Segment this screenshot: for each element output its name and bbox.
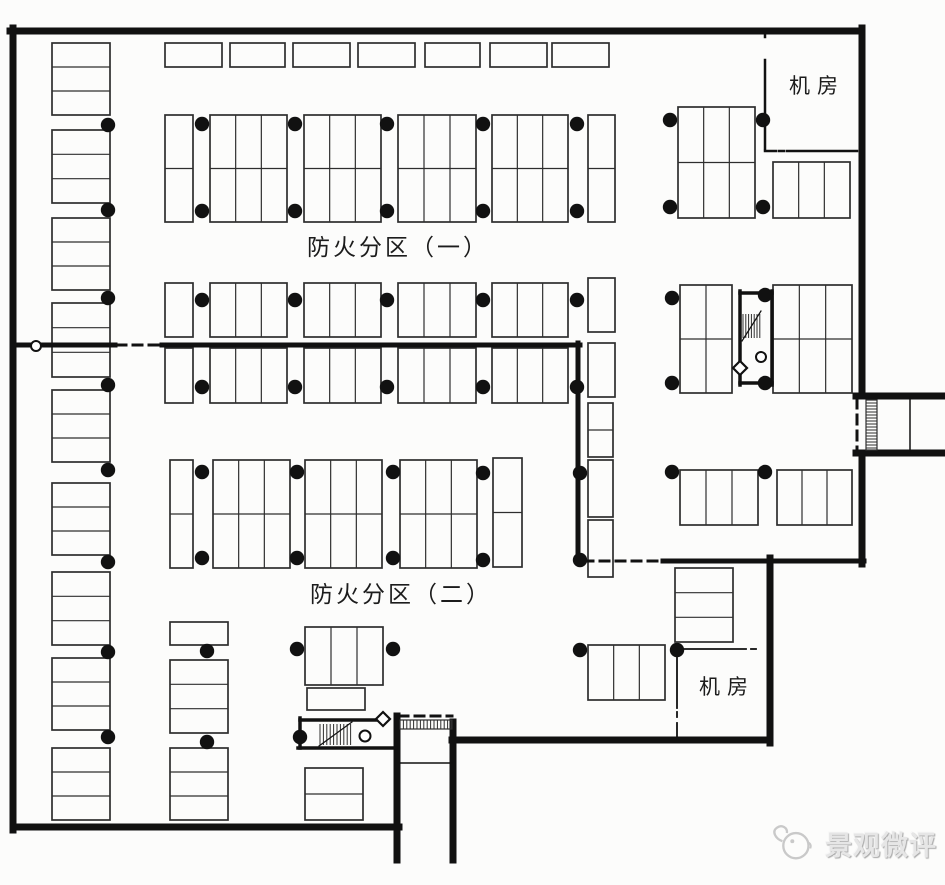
diamond-symbol	[733, 361, 747, 375]
stall-group	[680, 285, 732, 393]
stall-group	[773, 162, 850, 218]
exterior-walls	[10, 28, 945, 860]
stall-group-outline	[165, 43, 222, 67]
stall-group	[773, 285, 852, 393]
column-dot	[288, 380, 302, 394]
column-dot	[101, 730, 115, 744]
column-dot	[665, 376, 679, 390]
stall-group-outline	[52, 390, 110, 462]
stall-group	[52, 658, 110, 730]
stall-group-outline	[304, 283, 381, 337]
stall-group-outline	[52, 748, 110, 820]
column-dot	[195, 293, 209, 307]
door-circle-symbol	[31, 341, 41, 351]
stall-group	[210, 283, 287, 337]
stall-group-outline	[588, 343, 615, 397]
label-machine-room-bottom: 机房	[699, 677, 755, 698]
column-dot	[670, 643, 684, 657]
stall-group-outline	[588, 645, 665, 700]
stall-group	[588, 343, 615, 397]
stall-group-outline	[170, 748, 228, 820]
stall-group	[305, 627, 383, 685]
column-dot	[663, 200, 677, 214]
stall-group	[52, 43, 110, 115]
stall-group	[230, 43, 285, 67]
column-dot	[665, 291, 679, 305]
watermark: 景观微评	[768, 820, 937, 866]
column-dot	[570, 293, 584, 307]
stall-group	[52, 748, 110, 820]
stall-group	[170, 622, 228, 645]
column-dot	[573, 553, 587, 567]
stall-group-outline	[165, 348, 193, 403]
stall-group	[680, 470, 758, 525]
stall-group-outline	[552, 43, 609, 67]
column-dot	[200, 644, 214, 658]
column-dot	[663, 113, 677, 127]
stall-group-outline	[170, 622, 228, 645]
stall-group	[52, 390, 110, 462]
column-dot	[476, 204, 490, 218]
column-dot	[290, 642, 304, 656]
stall-group	[678, 107, 755, 218]
stall-group-outline	[425, 43, 480, 67]
stall-group-outline	[490, 43, 547, 67]
stall-group-outline	[52, 483, 110, 555]
column-dot	[101, 118, 115, 132]
stall-group-outline	[52, 218, 110, 290]
stall-group	[165, 348, 193, 403]
stall-group-outline	[675, 568, 733, 642]
stall-group	[307, 688, 365, 710]
stall-group-outline	[307, 688, 365, 710]
hatch-area	[866, 400, 877, 450]
stall-group	[165, 43, 222, 67]
stall-group	[52, 572, 110, 645]
stall-group	[398, 348, 476, 403]
column-dot	[195, 117, 209, 131]
column-dot	[195, 380, 209, 394]
column-dot	[200, 735, 214, 749]
column-dot	[293, 730, 307, 744]
stall-group-outline	[293, 43, 350, 67]
stall-group	[588, 278, 615, 332]
stall-group-outline	[210, 283, 287, 337]
stall-group	[304, 283, 381, 337]
stall-group-outline	[398, 348, 476, 403]
column-dot	[758, 376, 772, 390]
stall-group-outline	[305, 627, 383, 685]
stall-group	[213, 460, 290, 568]
stall-group-outline	[398, 283, 476, 337]
floor-plan-drawing	[0, 0, 945, 885]
stall-group	[358, 43, 415, 67]
stall-group	[588, 403, 613, 457]
stall-group	[170, 748, 228, 820]
stall-group-outline	[170, 660, 228, 733]
stall-group	[425, 43, 480, 67]
stall-group	[52, 483, 110, 555]
column-dot	[758, 465, 772, 479]
stall-group	[675, 568, 733, 642]
stall-group	[398, 115, 476, 222]
column-dot	[476, 293, 490, 307]
stall-group	[305, 768, 363, 820]
stall-group-outline	[52, 572, 110, 645]
stall-group	[170, 460, 193, 568]
column-dot	[476, 380, 490, 394]
label-fire-compartment-1: 防火分区（一）	[307, 236, 489, 259]
structural-columns	[101, 113, 772, 749]
label-machine-room-top: 机房	[789, 76, 845, 97]
column-dot	[101, 291, 115, 305]
stall-group	[305, 460, 382, 568]
column-dot	[101, 378, 115, 392]
column-dot	[288, 117, 302, 131]
column-dot	[573, 643, 587, 657]
door-circle-symbol	[360, 731, 371, 742]
stall-group-outline	[680, 470, 758, 525]
stall-group	[588, 520, 613, 577]
stall-group-outline	[588, 520, 613, 577]
watermark-logo-icon	[768, 820, 822, 866]
door-circle-symbol	[756, 352, 766, 362]
column-dot	[386, 551, 400, 565]
column-dot	[288, 204, 302, 218]
fire-walls	[14, 343, 864, 562]
column-dot	[195, 465, 209, 479]
column-dot	[101, 203, 115, 217]
column-dot	[380, 380, 394, 394]
column-dot	[756, 200, 770, 214]
stall-group-outline	[304, 348, 381, 403]
column-dot	[570, 380, 584, 394]
stall-group	[492, 115, 568, 222]
stall-group	[165, 115, 193, 222]
stall-group-outline	[52, 130, 110, 203]
stall-group	[52, 130, 110, 203]
column-dot	[570, 204, 584, 218]
stall-group	[588, 645, 665, 700]
column-dot	[386, 465, 400, 479]
stall-group-outline	[52, 43, 110, 115]
column-dot	[386, 642, 400, 656]
stall-group	[400, 460, 477, 568]
stall-group-outline	[52, 658, 110, 730]
column-dot	[380, 204, 394, 218]
stall-group	[492, 283, 568, 337]
column-dot	[195, 551, 209, 565]
stall-group-outline	[210, 348, 287, 403]
stall-group	[398, 283, 476, 337]
column-dot	[476, 117, 490, 131]
column-dot	[195, 204, 209, 218]
stall-group-outline	[492, 348, 568, 403]
column-dot	[290, 465, 304, 479]
stall-group-outline	[777, 470, 852, 525]
stall-group	[165, 283, 193, 337]
stall-group	[552, 43, 609, 67]
column-dot	[290, 551, 304, 565]
stall-group-outline	[165, 283, 193, 337]
stall-group	[210, 115, 287, 222]
stall-group	[304, 115, 381, 222]
watermark-text: 景观微评	[825, 824, 937, 863]
stall-group	[304, 348, 381, 403]
column-dot	[101, 645, 115, 659]
stall-group-outline	[52, 303, 110, 377]
stall-group	[170, 660, 228, 733]
column-dot	[665, 465, 679, 479]
column-dot	[758, 288, 772, 302]
stall-group-outline	[588, 278, 615, 332]
stall-group-outline	[588, 460, 613, 517]
stall-group	[588, 460, 613, 517]
stall-group-outline	[492, 283, 568, 337]
stall-group	[588, 115, 615, 222]
stall-group	[52, 218, 110, 290]
stall-group	[52, 303, 110, 377]
hatch-area	[400, 720, 452, 729]
column-dot	[380, 293, 394, 307]
stall-group-outline	[773, 162, 850, 218]
column-dot	[756, 113, 770, 127]
column-dot	[573, 466, 587, 480]
column-dot	[570, 117, 584, 131]
stall-group-outline	[230, 43, 285, 67]
column-dot	[476, 466, 490, 480]
stall-group	[490, 43, 547, 67]
column-dot	[476, 553, 490, 567]
label-fire-compartment-2: 防火分区（二）	[310, 583, 492, 606]
stall-group	[210, 348, 287, 403]
floor-plan: 防火分区（一） 防火分区（二） 机房 机房 景观微评	[0, 0, 945, 885]
column-dot	[288, 293, 302, 307]
column-dot	[101, 555, 115, 569]
column-dot	[101, 463, 115, 477]
stall-group	[777, 470, 852, 525]
stall-group-outline	[358, 43, 415, 67]
diamond-symbol	[376, 712, 390, 726]
stall-group	[293, 43, 350, 67]
column-dot	[380, 117, 394, 131]
stall-group	[493, 458, 522, 567]
stall-group	[492, 348, 568, 403]
stall-groups	[52, 43, 852, 820]
